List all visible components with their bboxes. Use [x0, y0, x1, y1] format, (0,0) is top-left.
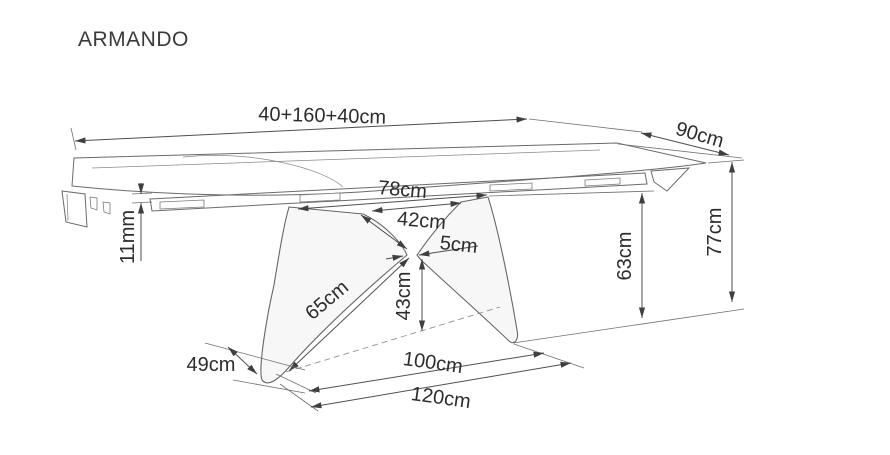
dim-top-depth: 90cm — [618, 118, 742, 158]
technical-drawing-page: ARMANDO 40+160+40cm 90cm — [0, 0, 890, 455]
dim-label-apron-height: 63cm — [614, 232, 636, 281]
dim-label-waist-height: 43cm — [393, 272, 415, 321]
hinge-tab — [103, 202, 110, 214]
dim-label-rail-gap: 11mm — [117, 210, 139, 264]
rail-segment — [490, 183, 532, 191]
leaf-seam-line — [92, 150, 600, 168]
page-title: ARMANDO — [78, 28, 189, 51]
dim-apron-height: 63cm — [489, 191, 654, 318]
dim-label-waist-thickness: 5cm — [439, 232, 479, 258]
floor-line — [513, 309, 744, 343]
dim-label-foot-width: 49cm — [187, 354, 236, 376]
dim-label-base-top-length: 78cm — [377, 177, 428, 203]
dim-total-height: 77cm — [704, 160, 744, 302]
table-drawing: ARMANDO 40+160+40cm 90cm — [0, 0, 890, 455]
rail-segment — [300, 193, 340, 202]
right-support-bracket — [651, 168, 689, 191]
dim-rail-gap: 11mm — [117, 183, 152, 264]
dim-top-length: 40+160+40cm — [71, 103, 642, 150]
dim-label-base-length: 120cm — [410, 383, 473, 413]
folded-leaf-edge — [67, 194, 68, 221]
dim-label-feet-span: 100cm — [402, 348, 465, 378]
dim-waist-height: 43cm — [393, 259, 422, 331]
folded-leaf — [62, 191, 87, 227]
rail-segment — [160, 200, 204, 209]
pedestal-base — [261, 197, 518, 383]
dim-label-top-length: 40+160+40cm — [258, 103, 386, 128]
dim-label-total-height: 77cm — [704, 208, 726, 257]
rail-segment — [585, 178, 620, 186]
hinge-tab — [90, 197, 97, 210]
left-extension-leaf — [62, 191, 110, 227]
dim-label-legs-top-gap: 42cm — [396, 208, 447, 234]
